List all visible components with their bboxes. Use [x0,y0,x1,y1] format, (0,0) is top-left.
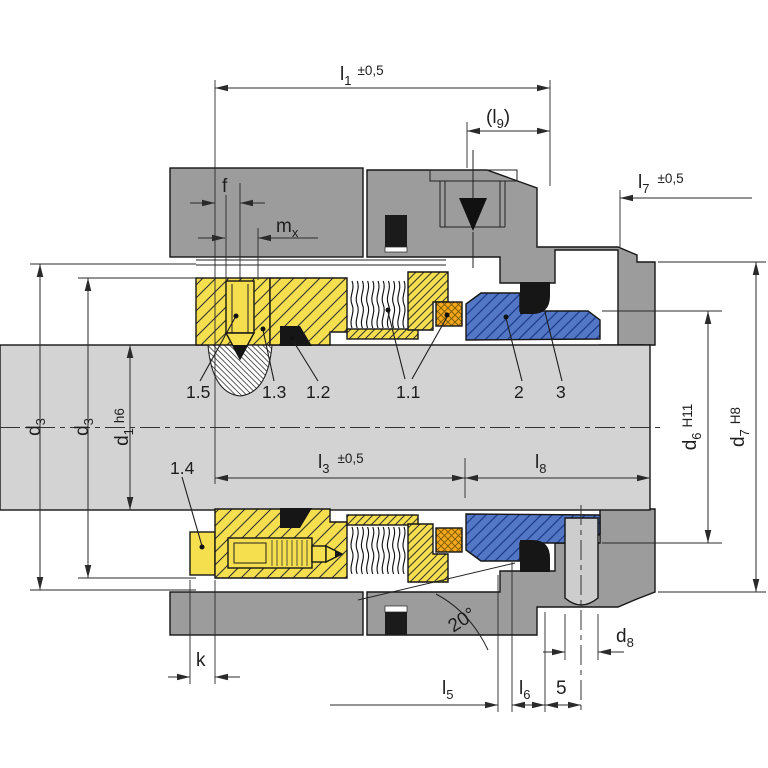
housing-block-upper [170,168,363,257]
label-part-1-2: 1.2 [306,382,330,402]
label-part-3: 3 [556,382,566,402]
label-part-1-5: 1.5 [186,382,210,402]
dim-k: k [196,650,206,671]
gasket-lower [385,606,407,612]
label-part-1-1: 1.1 [396,382,420,402]
seal-drawing: l1±0,5 (l9) l7±0,5 f mx d3 d3 d1h6 l3±0,… [0,0,768,768]
set-screw-lower-neck [312,546,326,562]
oring-orange-lower [436,528,462,552]
dim-f: f [222,176,228,197]
label-part-1-4: 1.4 [170,458,195,478]
label-part-2: 2 [514,382,524,402]
oring-black-lower [520,540,550,572]
gasket-upper [385,247,407,252]
dim-5: 5 [556,678,567,699]
drawing-page: l1±0,5 (l9) l7±0,5 f mx d3 d3 d1h6 l3±0,… [0,0,768,768]
set-screw-body [226,281,254,333]
housing-key-lower [385,612,407,635]
housing-key-upper [385,215,407,247]
housing-block-lower [170,592,363,635]
screw-head-block [190,532,215,575]
oring-black-upper [520,282,550,314]
label-part-1-3: 1.3 [262,382,286,402]
